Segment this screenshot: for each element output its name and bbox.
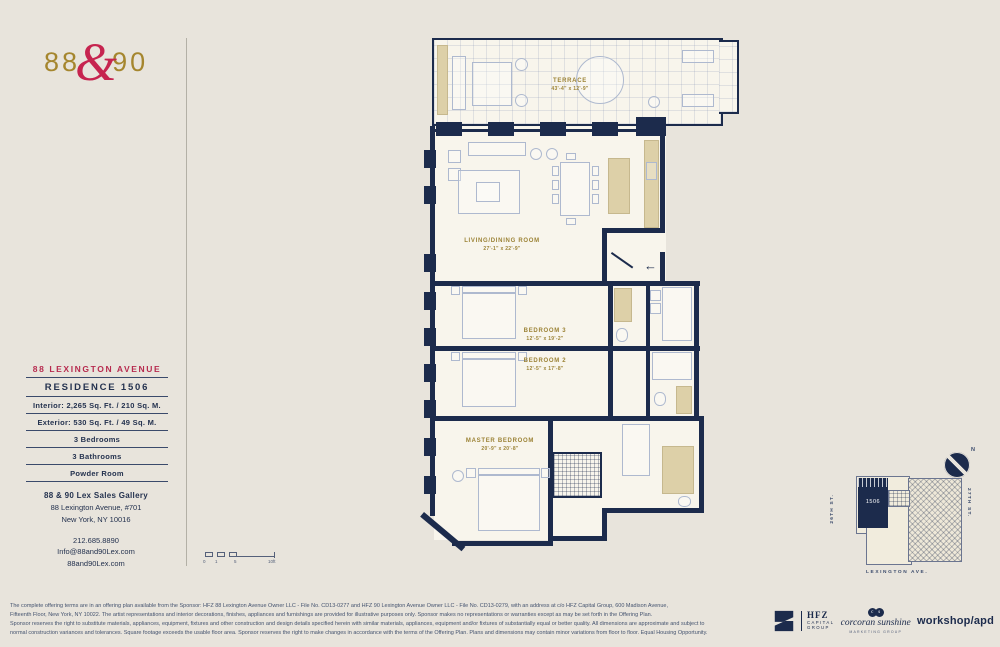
gallery-name: 88 & 90 Lex Sales Gallery	[16, 490, 176, 502]
residence-number: RESIDENCE 1506	[26, 378, 168, 397]
gallery-address-2: New York, NY 10016	[16, 514, 176, 526]
avenue-label: LEXINGTON AVE.	[866, 570, 928, 575]
keyplan-unit-number: 1506	[858, 499, 888, 505]
window-pier	[592, 122, 618, 136]
nightstand	[466, 468, 476, 478]
keyplan-courtyard	[908, 478, 962, 562]
terrace-rug	[472, 62, 512, 106]
kitchen-counter	[644, 140, 659, 228]
contact-block: 88 & 90 Lex Sales Gallery 88 Lexington A…	[16, 490, 176, 570]
scale-0: 0	[203, 559, 206, 564]
spec-bathrooms: 3 Bathrooms	[26, 448, 168, 465]
disclaimer-line-4: normal construction variances and tolera…	[10, 629, 762, 638]
dining-chair	[566, 153, 576, 160]
corcoran-cs-icon: c s	[868, 608, 884, 617]
wall	[660, 126, 665, 232]
hfz-group: GROUP	[807, 626, 834, 631]
dining-chair	[552, 166, 559, 176]
dining-chair	[552, 180, 559, 190]
scale-tick	[274, 552, 275, 558]
email-address: Info@88and90Lex.com	[16, 546, 176, 558]
terrace-chair	[515, 58, 528, 71]
disclaimer-line-3: Sponsor reserves the right to substitute…	[10, 620, 762, 629]
wall	[699, 416, 704, 513]
headboard	[478, 468, 540, 475]
window-pier	[424, 186, 436, 204]
entry-arrow-icon: ←	[644, 258, 657, 273]
phone-number: 212.685.8890	[16, 535, 176, 547]
double-vanity	[662, 446, 694, 494]
website-url: 88and90Lex.com	[16, 558, 176, 570]
keyplan-building-lower	[866, 528, 912, 565]
dining-chair	[552, 194, 559, 204]
disclaimer-line-2: Fifteenth Floor, New York, NY 10022. The…	[10, 611, 762, 620]
residence-info-panel: 88 LEXINGTON AVENUE RESIDENCE 1506 Inter…	[26, 360, 168, 482]
toilet	[654, 392, 666, 406]
window-pier	[488, 122, 514, 136]
window-pier	[424, 328, 436, 346]
terrace-plant	[648, 96, 660, 108]
toilet	[616, 328, 628, 342]
scale-segment	[229, 552, 237, 557]
dining-chair	[592, 180, 599, 190]
scale-segment	[205, 552, 213, 557]
dining-chair	[566, 218, 576, 225]
window-pier	[424, 292, 436, 310]
terrace-step	[719, 40, 739, 114]
wall	[602, 228, 665, 233]
gallery-address-1: 88 Lexington Avenue, #701	[16, 502, 176, 514]
compass-north-label: N	[971, 447, 975, 453]
kitchen-island	[608, 158, 630, 214]
nightstand	[518, 286, 527, 295]
bedroom3-label: BEDROOM 3 12'-5" x 19'-2"	[505, 328, 585, 342]
keyplan-core	[888, 490, 910, 507]
bathtub	[622, 424, 650, 476]
side-chair	[546, 148, 558, 160]
building-name: 88 LEXINGTON AVENUE	[26, 360, 168, 378]
scale-1: 1	[215, 559, 218, 564]
shower	[652, 352, 692, 380]
corcoran-tagline: MARKETING GROUP	[849, 631, 902, 635]
wall	[452, 541, 552, 546]
nightstand	[541, 468, 550, 478]
terrace-chair	[515, 94, 528, 107]
accent-chair	[452, 470, 464, 482]
master-bedroom-label: MASTER BEDROOM 20'-9" x 20'-8"	[460, 438, 540, 452]
wall	[430, 126, 435, 516]
compass-icon	[944, 452, 970, 478]
scale-10ft: 10ft	[268, 559, 276, 564]
terrace-sofa	[452, 56, 466, 110]
partner-logos: HFZ CAPITAL GROUP c s corcoran sunshine …	[772, 600, 994, 642]
brand-ampersand: &	[75, 38, 117, 87]
washer	[650, 290, 661, 301]
window-pier	[424, 476, 436, 494]
brochure-page: 88 & 90 88 LEXINGTON AVENUE RESIDENCE 15…	[0, 0, 1000, 647]
brand-90: 90	[112, 47, 148, 78]
spec-powder-room: Powder Room	[26, 465, 168, 482]
brand-logo: 88 & 90	[44, 38, 148, 87]
vanity	[676, 386, 692, 414]
side-chair	[530, 148, 542, 160]
wall	[608, 281, 613, 421]
bed	[478, 475, 540, 531]
window-pier	[424, 254, 436, 272]
keyplan-unit-1506: 1506	[858, 478, 888, 528]
window-pier	[540, 122, 566, 136]
toilet	[678, 496, 691, 507]
scale-line	[237, 556, 275, 557]
dryer	[650, 303, 661, 314]
window-pier	[424, 150, 436, 168]
spec-bedrooms: 3 Bedrooms	[26, 431, 168, 448]
window-pier	[424, 438, 436, 456]
cooktop	[646, 162, 657, 180]
sofa	[468, 142, 526, 156]
living-room-label: LIVING/DINING ROOM 27'-1" x 22'-9"	[455, 238, 549, 252]
wall	[434, 416, 704, 421]
wall	[434, 346, 700, 351]
hfz-z-mark-icon	[772, 608, 796, 634]
walk-in-closet	[552, 452, 602, 498]
street-label-right: 27TH ST.	[966, 488, 971, 518]
wall	[660, 252, 665, 284]
keyplan-unit-terrace-hatch	[858, 478, 888, 487]
headboard	[462, 286, 516, 293]
bedroom2-label: BEDROOM 2 12'-5" x 17'-8"	[505, 358, 585, 372]
spec-exterior: Exterior: 530 Sq. Ft. / 49 Sq. M.	[26, 414, 168, 431]
dining-chair	[592, 166, 599, 176]
nightstand	[451, 286, 460, 295]
scale-segment	[217, 552, 225, 557]
corcoran-sunshine-logo: c s corcoran sunshine MARKETING GROUP	[841, 608, 911, 634]
nightstand	[451, 352, 460, 361]
terrace-label: TERRACE 43'-4" x 12'-9"	[530, 78, 610, 92]
dining-chair	[592, 194, 599, 204]
legal-disclaimer: The complete offering terms are in an of…	[10, 602, 762, 638]
wall	[602, 233, 607, 284]
workshop-apd-logo: workshop/apd	[917, 615, 994, 627]
planter	[437, 45, 448, 115]
scale-5: 5	[234, 559, 237, 564]
street-label-left: 26TH ST.	[830, 494, 835, 524]
spec-interior: Interior: 2,265 Sq. Ft. / 210 Sq. M.	[26, 397, 168, 414]
terrace-lounger	[682, 94, 714, 107]
background-mask	[604, 512, 706, 542]
window-pier	[424, 364, 436, 382]
wall	[602, 508, 704, 513]
corcoran-name: corcoran sunshine	[841, 619, 911, 629]
coffee-table	[476, 182, 500, 202]
dining-table	[560, 162, 590, 216]
vanity	[614, 288, 632, 322]
armchair	[448, 150, 461, 163]
window-pier	[436, 122, 462, 136]
vertical-divider	[186, 38, 187, 566]
disclaimer-line-1: The complete offering terms are in an of…	[10, 602, 762, 611]
wall	[552, 536, 606, 541]
wall	[694, 281, 699, 421]
terrace-lounger	[682, 50, 714, 63]
hfz-logo: HFZ CAPITAL GROUP	[772, 608, 834, 634]
bathtub	[662, 287, 692, 341]
